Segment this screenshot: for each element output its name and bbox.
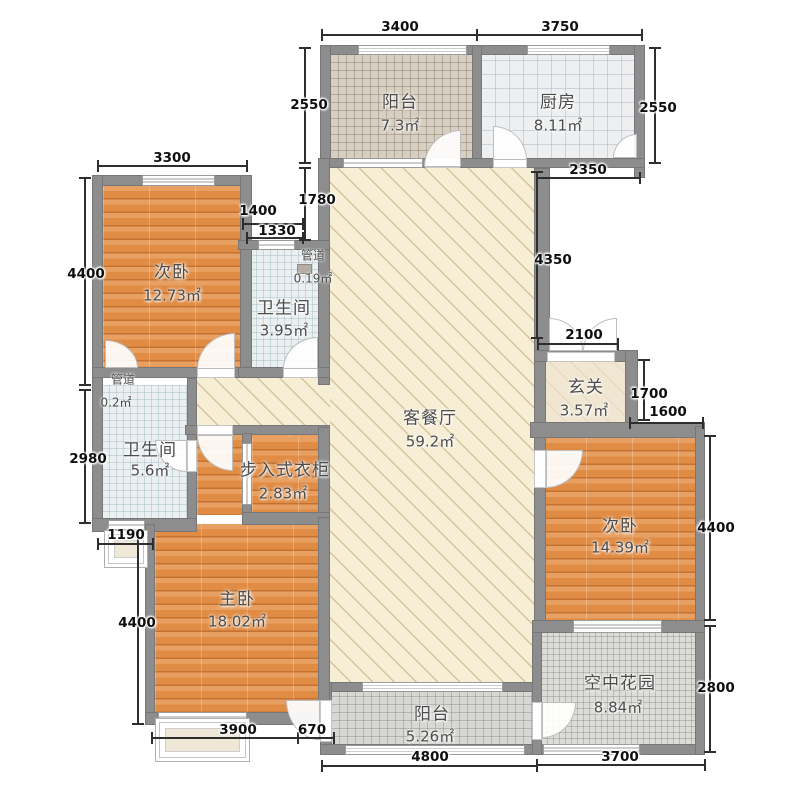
dimension-label: 1400 (239, 203, 277, 219)
dimension-label: 3750 (541, 19, 579, 35)
dimension-tick (704, 619, 716, 621)
window (362, 682, 503, 692)
dimension-line (630, 422, 703, 424)
window (358, 45, 467, 55)
floor-plan: 3400375025502550235033001400133017804400… (0, 0, 800, 800)
dimension-label: 2980 (69, 451, 107, 467)
dimension-tick (79, 177, 91, 179)
dimension-tick (537, 338, 539, 350)
dimension-tick (704, 751, 716, 753)
dimension-label: 2550 (290, 97, 328, 113)
dimension-tick (97, 538, 99, 550)
wall (318, 517, 330, 717)
room-area-balcony-bottom: 5.26㎡ (406, 726, 454, 747)
window (573, 620, 662, 633)
room-area-bath-big: 5.6㎡ (131, 460, 170, 481)
dimension-tick (531, 171, 543, 173)
room-label-hallway: 玄关 (568, 373, 604, 398)
door-gap (187, 440, 197, 472)
room-label-bath-small: 卫生间 (257, 294, 311, 319)
dimension-tick (536, 759, 538, 771)
dimension-label: 1190 (107, 527, 145, 543)
duct-left-name: 管道 (111, 371, 135, 388)
dimension-label: 1700 (630, 386, 668, 402)
dimension-label: 2350 (569, 162, 607, 178)
dimension-tick (704, 759, 706, 771)
dimension-line (98, 543, 153, 545)
duct-top-name: 管道 (301, 247, 325, 264)
dimension-label: 4400 (67, 266, 105, 282)
wall (92, 175, 103, 530)
window (527, 45, 610, 55)
wall (530, 422, 705, 438)
room-label-balcony-bottom: 阳台 (414, 700, 450, 725)
dimension-tick (702, 417, 704, 429)
dimension-tick (132, 723, 144, 725)
room-label-living-dining: 客餐厅 (403, 404, 457, 429)
room-label-closet: 步入式衣柜 (240, 456, 330, 481)
dimension-tick (299, 162, 311, 164)
dimension-label: 1600 (649, 404, 687, 420)
room-area-sky-garden: 8.84㎡ (594, 697, 642, 718)
dimension-tick (638, 419, 650, 421)
room-label-master-bedroom: 主卧 (219, 585, 255, 610)
dimension-tick (333, 732, 335, 744)
room-label-bath-big: 卫生间 (123, 436, 177, 461)
dimension-tick (629, 417, 631, 429)
dimension-tick (639, 172, 641, 184)
window (343, 158, 423, 168)
room-area-closet: 2.83㎡ (259, 483, 307, 504)
duct-left-area: 0.2㎡ (100, 394, 131, 411)
room-area-bath-small: 3.95㎡ (260, 320, 308, 341)
dimension-tick (704, 435, 716, 437)
dimension-tick (476, 29, 478, 41)
dimension-label: 1330 (258, 223, 296, 239)
door-gap (547, 352, 615, 362)
dimension-label: 4350 (534, 252, 572, 268)
dimension-label: 2100 (565, 327, 603, 343)
dimension-tick (246, 160, 248, 172)
dimension-tick (246, 232, 248, 244)
duct-top-area: 0.19㎡ (294, 270, 333, 287)
dimension-tick (638, 359, 650, 361)
dimension-tick (531, 337, 543, 339)
dimension-label: 3300 (153, 150, 191, 166)
room-area-master-bedroom: 18.02㎡ (208, 611, 266, 632)
dimension-label: 3700 (601, 749, 639, 765)
room-label-sky-garden: 空中花园 (584, 669, 656, 694)
dimension-tick (704, 625, 716, 627)
dimension-tick (649, 162, 661, 164)
room-label-bedroom-right: 次卧 (602, 512, 638, 537)
dimension-label: 4400 (697, 520, 735, 536)
wall (695, 426, 705, 755)
dimension-tick (641, 29, 643, 41)
dimension-label: 2800 (697, 680, 735, 696)
dimension-line (538, 343, 618, 345)
room-area-bedroom-left: 12.73㎡ (143, 285, 201, 306)
door-gap (534, 450, 546, 488)
window (258, 240, 295, 250)
room-label-kitchen: 厨房 (540, 88, 576, 113)
dimension-tick (321, 760, 323, 772)
room-area-balcony-top: 7.3㎡ (381, 115, 420, 136)
room-corridor (197, 378, 330, 425)
room-area-hallway: 3.57㎡ (560, 400, 608, 421)
dimension-tick (299, 239, 311, 241)
room-label-bedroom-left: 次卧 (154, 258, 190, 283)
dimension-tick (79, 389, 91, 391)
dimension-tick (649, 47, 661, 49)
dimension-label: 1780 (298, 192, 336, 208)
dimension-line (322, 765, 537, 767)
window (142, 175, 215, 186)
dimension-label: 670 (298, 722, 326, 738)
room-area-living-dining: 59.2㎡ (406, 431, 454, 452)
dimension-tick (242, 218, 244, 230)
dimension-label: 2550 (639, 100, 677, 116)
door-gap (197, 425, 233, 435)
dimension-tick (152, 538, 154, 550)
dimension-tick (299, 47, 311, 49)
wall (472, 45, 482, 168)
dimension-tick (321, 29, 323, 41)
dimension-tick (617, 338, 619, 350)
room-area-bedroom-right: 14.39㎡ (591, 537, 649, 558)
dimension-label: 3900 (219, 722, 257, 738)
wall (242, 512, 330, 525)
dimension-label: 3400 (381, 19, 419, 35)
room-label-balcony-top: 阳台 (382, 88, 418, 113)
door-gap (532, 702, 542, 740)
dimension-tick (79, 384, 91, 386)
dimension-tick (151, 732, 153, 744)
wall (534, 350, 546, 633)
dimension-label: 4800 (411, 749, 449, 765)
dimension-tick (79, 522, 91, 524)
dimension-tick (97, 160, 99, 172)
dimension-tick (299, 167, 311, 169)
room-area-kitchen: 8.11㎡ (534, 115, 582, 136)
dimension-label: 4400 (118, 615, 156, 631)
